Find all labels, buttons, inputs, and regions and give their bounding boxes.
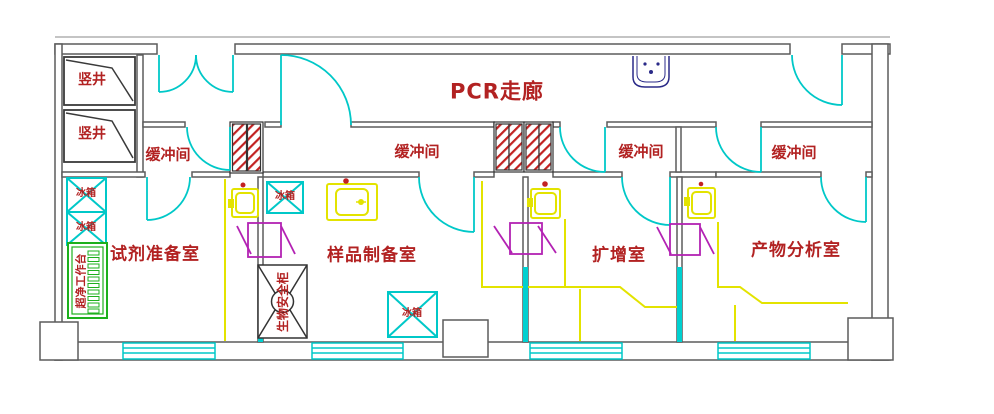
bench-sample bbox=[482, 181, 523, 287]
sample-room-label: 样品制备室 bbox=[327, 248, 417, 265]
buffer-2-label: 缓冲间 bbox=[394, 145, 439, 160]
product-room-label: 产物分析室 bbox=[751, 243, 841, 260]
door-buffer4-product bbox=[821, 177, 866, 222]
reagent-room-label: 试剂准备室 bbox=[110, 247, 200, 264]
door-buffer3-amplification bbox=[622, 177, 670, 225]
shaft-2-label: 竖井 bbox=[78, 127, 106, 141]
window-3 bbox=[530, 343, 622, 359]
door-corridor-buffer1 bbox=[187, 127, 230, 170]
window-4 bbox=[718, 343, 810, 359]
door-buffer1-reagent bbox=[147, 177, 190, 220]
transfer-window-b bbox=[494, 122, 553, 172]
buffer-1-label: 缓冲间 bbox=[145, 148, 190, 163]
door-corridor-buffer3 bbox=[560, 127, 605, 172]
fridge-2-label: 冰箱 bbox=[76, 223, 96, 233]
window-2 bbox=[312, 343, 403, 359]
sink-amplification bbox=[527, 181, 560, 218]
sink-sample bbox=[327, 178, 377, 220]
door-corridor-buffer4 bbox=[716, 127, 761, 172]
amplification-room-label: 扩增室 bbox=[592, 248, 646, 265]
fridge-1-label: 冰箱 bbox=[76, 189, 96, 199]
sink-product bbox=[684, 182, 715, 218]
door-corridor-buffer2 bbox=[281, 55, 351, 125]
fridge-4-label: 冰箱 bbox=[402, 309, 422, 319]
sink-reagent bbox=[228, 183, 258, 218]
shaft-1-label: 竖井 bbox=[78, 73, 106, 87]
pass-box-1 bbox=[237, 223, 295, 257]
clean-bench-label: 超净工作台 bbox=[76, 254, 87, 309]
pass-box-3 bbox=[657, 224, 714, 255]
transfer-window-a bbox=[230, 122, 263, 173]
fridge-3-label: 冰箱 bbox=[275, 192, 295, 202]
buffer-4-label: 缓冲间 bbox=[771, 146, 816, 161]
bench-amplification bbox=[528, 219, 677, 341]
door-top-right bbox=[792, 55, 842, 105]
floor-plan-canvas: PCR走廊 竖井 竖井 缓冲间 缓冲间 缓冲间 缓冲间 试剂准备室 样品制备室 … bbox=[0, 0, 994, 414]
corridor-label: PCR走廊 bbox=[450, 82, 544, 103]
main-entrance-double-door bbox=[159, 55, 233, 92]
window-1 bbox=[123, 343, 215, 359]
door-buffer2-sample bbox=[419, 177, 474, 232]
corridor-basin bbox=[633, 56, 669, 87]
biosafety-cabinet-label: 生物安全柜 bbox=[277, 272, 289, 332]
floor-plan-drawing bbox=[0, 0, 994, 414]
buffer-3-label: 缓冲间 bbox=[618, 145, 663, 160]
